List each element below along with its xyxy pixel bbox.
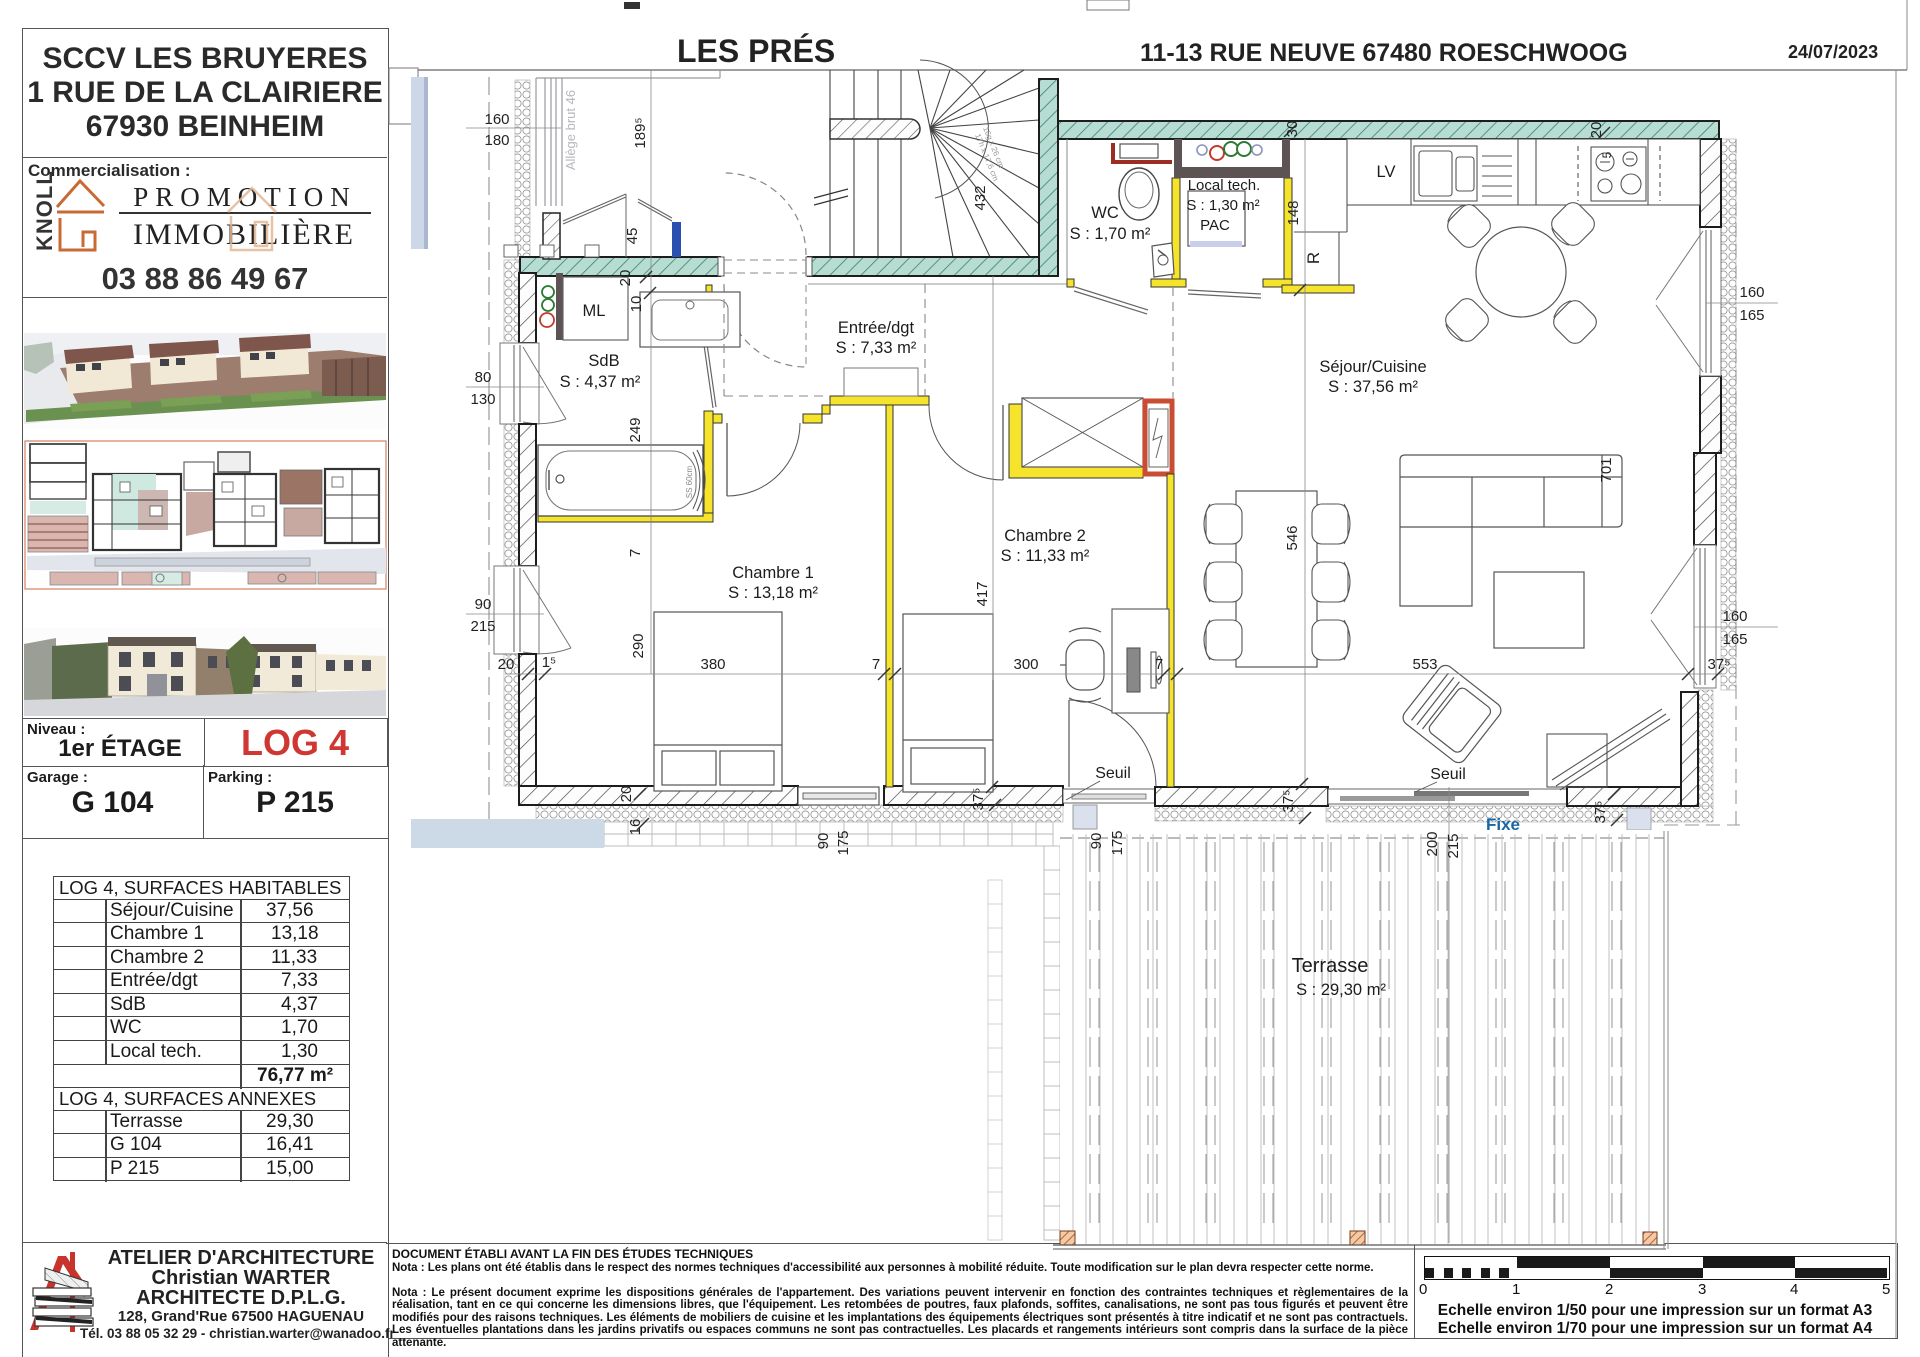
svg-text:Allège brut 46: Allège brut 46: [563, 90, 578, 170]
svg-text:20: 20: [617, 270, 634, 287]
svg-text:215: 215: [1445, 833, 1462, 858]
svg-text:160: 160: [484, 111, 509, 128]
svg-text:189⁵: 189⁵: [632, 117, 649, 148]
svg-text:20: 20: [618, 786, 635, 803]
svg-text:S : 11,33 m²: S : 11,33 m²: [1001, 547, 1090, 565]
svg-text:7: 7: [627, 549, 644, 557]
svg-text:1⁵: 1⁵: [542, 654, 557, 671]
svg-text:553: 553: [1412, 656, 1437, 673]
svg-text:90: 90: [815, 833, 832, 850]
svg-text:S : 1,70 m²: S : 1,70 m²: [1070, 225, 1151, 243]
svg-text:S : 4,37 m²: S : 4,37 m²: [560, 373, 641, 391]
svg-text:290: 290: [630, 633, 647, 658]
svg-text:PAC: PAC: [1200, 217, 1230, 234]
svg-text:Chambre 1: Chambre 1: [732, 564, 814, 582]
svg-text:Seuil: Seuil: [1430, 766, 1466, 783]
svg-text:Local tech.: Local tech.: [1188, 177, 1261, 194]
svg-text:16: 16: [627, 819, 644, 836]
svg-text:37⁵: 37⁵: [1280, 790, 1297, 813]
svg-text:S : 13,18 m²: S : 13,18 m²: [728, 584, 818, 602]
svg-text:5: 5: [1600, 151, 1614, 158]
svg-text:S : 1,30 m²: S : 1,30 m²: [1186, 197, 1259, 214]
svg-text:7: 7: [1155, 656, 1163, 673]
svg-text:90: 90: [1088, 833, 1105, 850]
svg-text:SS 60cm: SS 60cm: [685, 465, 694, 498]
svg-text:148: 148: [1285, 200, 1302, 225]
svg-text:90: 90: [475, 596, 492, 613]
svg-text:R: R: [1304, 252, 1323, 264]
svg-text:432: 432: [972, 185, 989, 210]
svg-text:165: 165: [1722, 631, 1747, 648]
svg-text:20: 20: [498, 656, 515, 673]
svg-text:7: 7: [872, 656, 880, 673]
svg-text:30: 30: [1284, 121, 1301, 138]
svg-text:WC: WC: [1091, 204, 1119, 222]
svg-text:175: 175: [1109, 830, 1126, 855]
svg-text:20: 20: [1588, 122, 1605, 139]
svg-text:200: 200: [1424, 831, 1441, 856]
svg-text:37⁵: 37⁵: [1708, 656, 1731, 673]
svg-text:Entrée/dgt: Entrée/dgt: [838, 319, 915, 337]
svg-text:LV: LV: [1377, 163, 1396, 181]
svg-text:S : 7,33 m²: S : 7,33 m²: [836, 339, 917, 357]
svg-text:180: 180: [484, 132, 509, 149]
svg-text:Séjour/Cuisine: Séjour/Cuisine: [1319, 358, 1426, 376]
svg-text:ML: ML: [583, 302, 606, 320]
svg-text:S : 29,30 m²: S : 29,30 m²: [1296, 981, 1386, 999]
svg-text:380: 380: [700, 656, 725, 673]
svg-text:Chambre 2: Chambre 2: [1004, 527, 1086, 545]
svg-text:37⁵: 37⁵: [970, 788, 987, 811]
svg-text:80: 80: [475, 369, 492, 386]
svg-text:160: 160: [1722, 608, 1747, 625]
svg-text:37⁵: 37⁵: [1592, 801, 1609, 824]
svg-text:175: 175: [835, 830, 852, 855]
svg-text:160: 160: [1739, 284, 1764, 301]
svg-text:300: 300: [1013, 656, 1038, 673]
svg-text:Seuil: Seuil: [1095, 765, 1131, 782]
svg-text:701: 701: [1598, 457, 1615, 482]
svg-text:SdB: SdB: [588, 352, 619, 370]
svg-text:165: 165: [1739, 307, 1764, 324]
svg-text:546: 546: [1284, 525, 1301, 550]
svg-text:10: 10: [628, 296, 645, 313]
svg-text:215: 215: [470, 618, 495, 635]
svg-text:S : 37,56 m²: S : 37,56 m²: [1328, 378, 1418, 396]
svg-text:Fixe: Fixe: [1486, 815, 1520, 834]
svg-text:417: 417: [974, 581, 991, 606]
svg-text:Terrasse: Terrasse: [1292, 955, 1369, 977]
svg-text:130: 130: [470, 391, 495, 408]
svg-text:249: 249: [627, 417, 644, 442]
svg-text:45: 45: [624, 228, 641, 245]
